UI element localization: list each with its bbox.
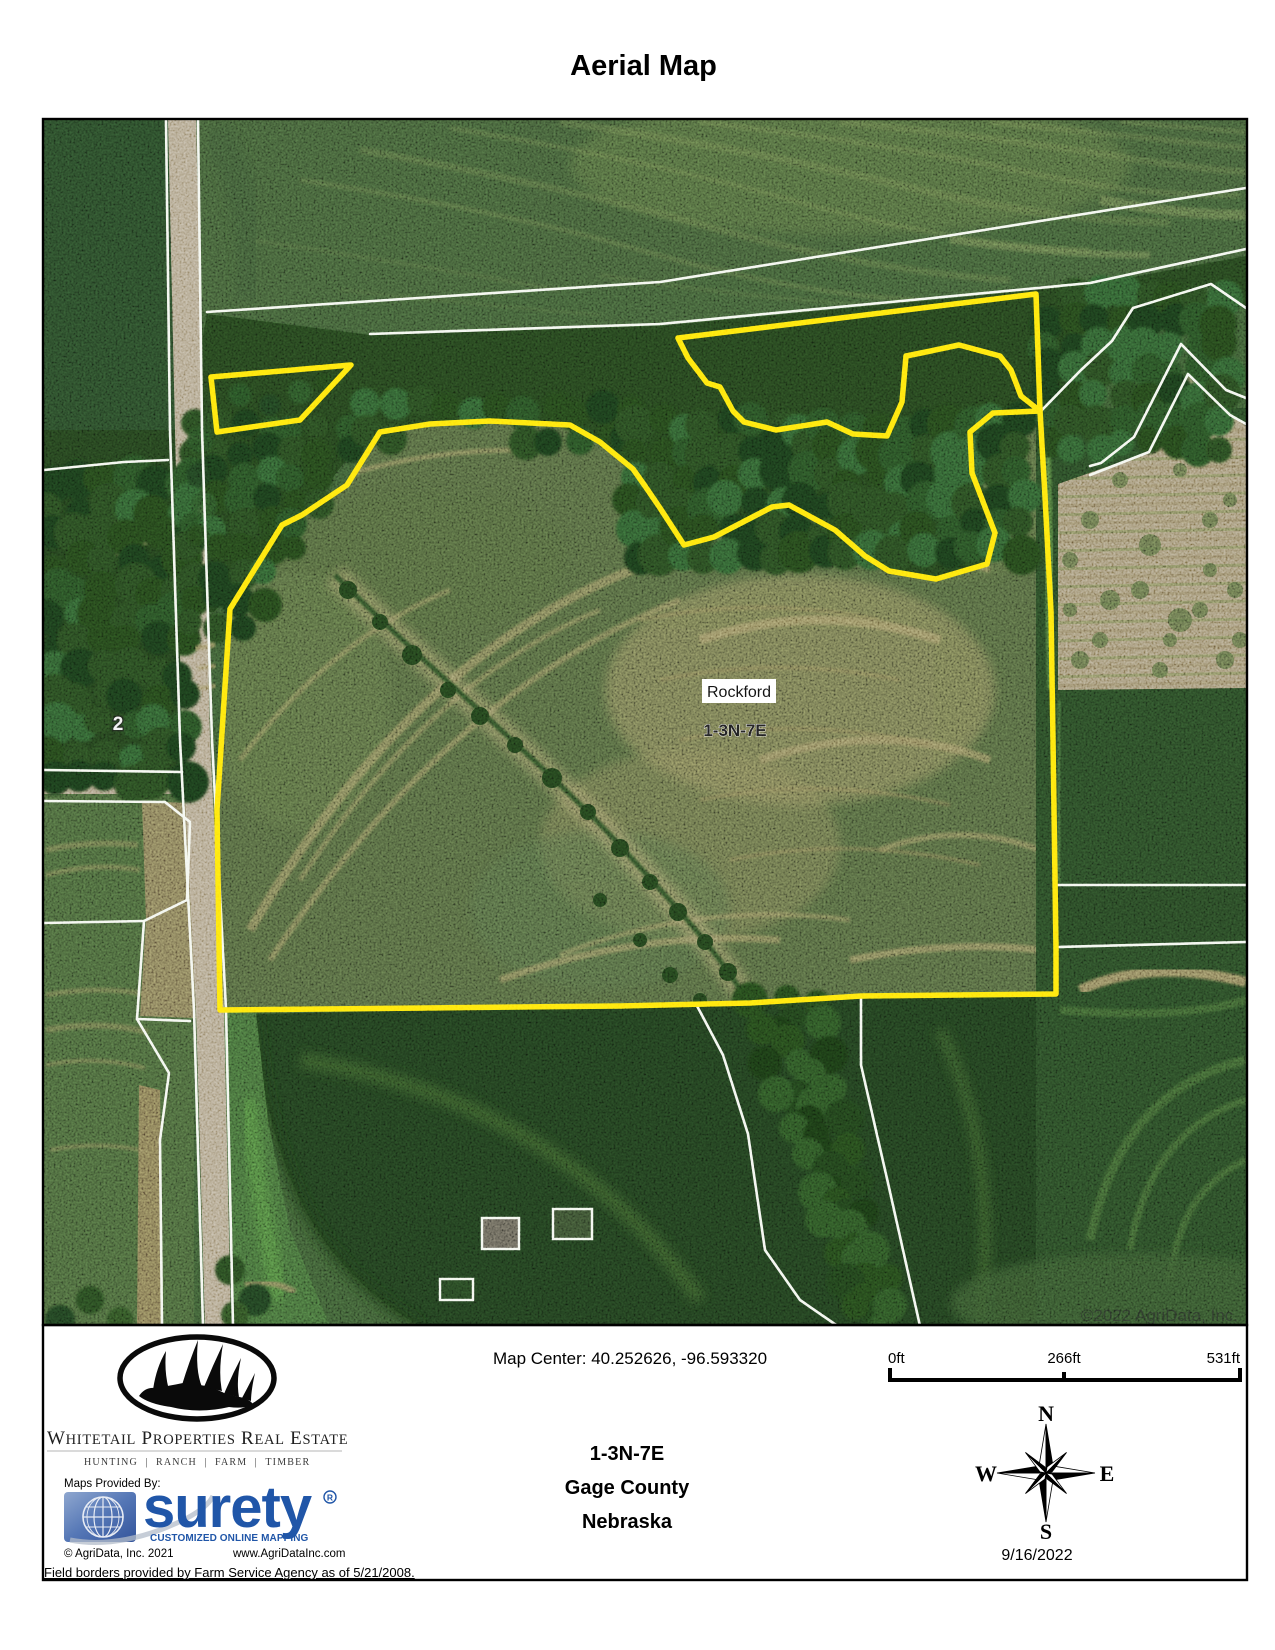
svg-text:N: N bbox=[1038, 1401, 1054, 1426]
svg-text:www.AgriDataInc.com: www.AgriDataInc.com bbox=[232, 1548, 345, 1560]
svg-text:266ft: 266ft bbox=[1047, 1350, 1081, 1367]
svg-text:9/16/2022: 9/16/2022 bbox=[1001, 1547, 1072, 1564]
svg-text:surety: surety bbox=[143, 1475, 312, 1540]
svg-text:Field borders provided by Farm: Field borders provided by Farm Service A… bbox=[44, 1565, 415, 1580]
svg-text:531ft: 531ft bbox=[1207, 1350, 1241, 1367]
svg-text:W: W bbox=[975, 1461, 997, 1486]
svg-text:Gage County: Gage County bbox=[565, 1477, 690, 1499]
svg-text:WHITETAIL PROPERTIES REAL ESTA: WHITETAIL PROPERTIES REAL ESTATE bbox=[47, 1428, 348, 1449]
svg-text:HUNTING | RANCH | FARM |: HUNTING | RANCH | FARM | TIMBER bbox=[84, 1457, 310, 1468]
svg-text:S: S bbox=[1040, 1519, 1052, 1544]
svg-text:CUSTOMIZED ONLINE MAPPING: CUSTOMIZED ONLINE MAPPING bbox=[150, 1533, 309, 1544]
svg-text:1-3N-7E: 1-3N-7E bbox=[590, 1443, 664, 1465]
svg-text:0ft: 0ft bbox=[888, 1350, 906, 1367]
svg-text:Map Center: 40.252626, -96.593: Map Center: 40.252626, -96.593320 bbox=[493, 1349, 767, 1368]
svg-text:© AgriData, Inc. 2021: © AgriData, Inc. 2021 bbox=[64, 1548, 173, 1560]
svg-text:Nebraska: Nebraska bbox=[582, 1511, 673, 1533]
svg-text:R: R bbox=[327, 1493, 333, 1503]
svg-text:E: E bbox=[1100, 1461, 1115, 1486]
